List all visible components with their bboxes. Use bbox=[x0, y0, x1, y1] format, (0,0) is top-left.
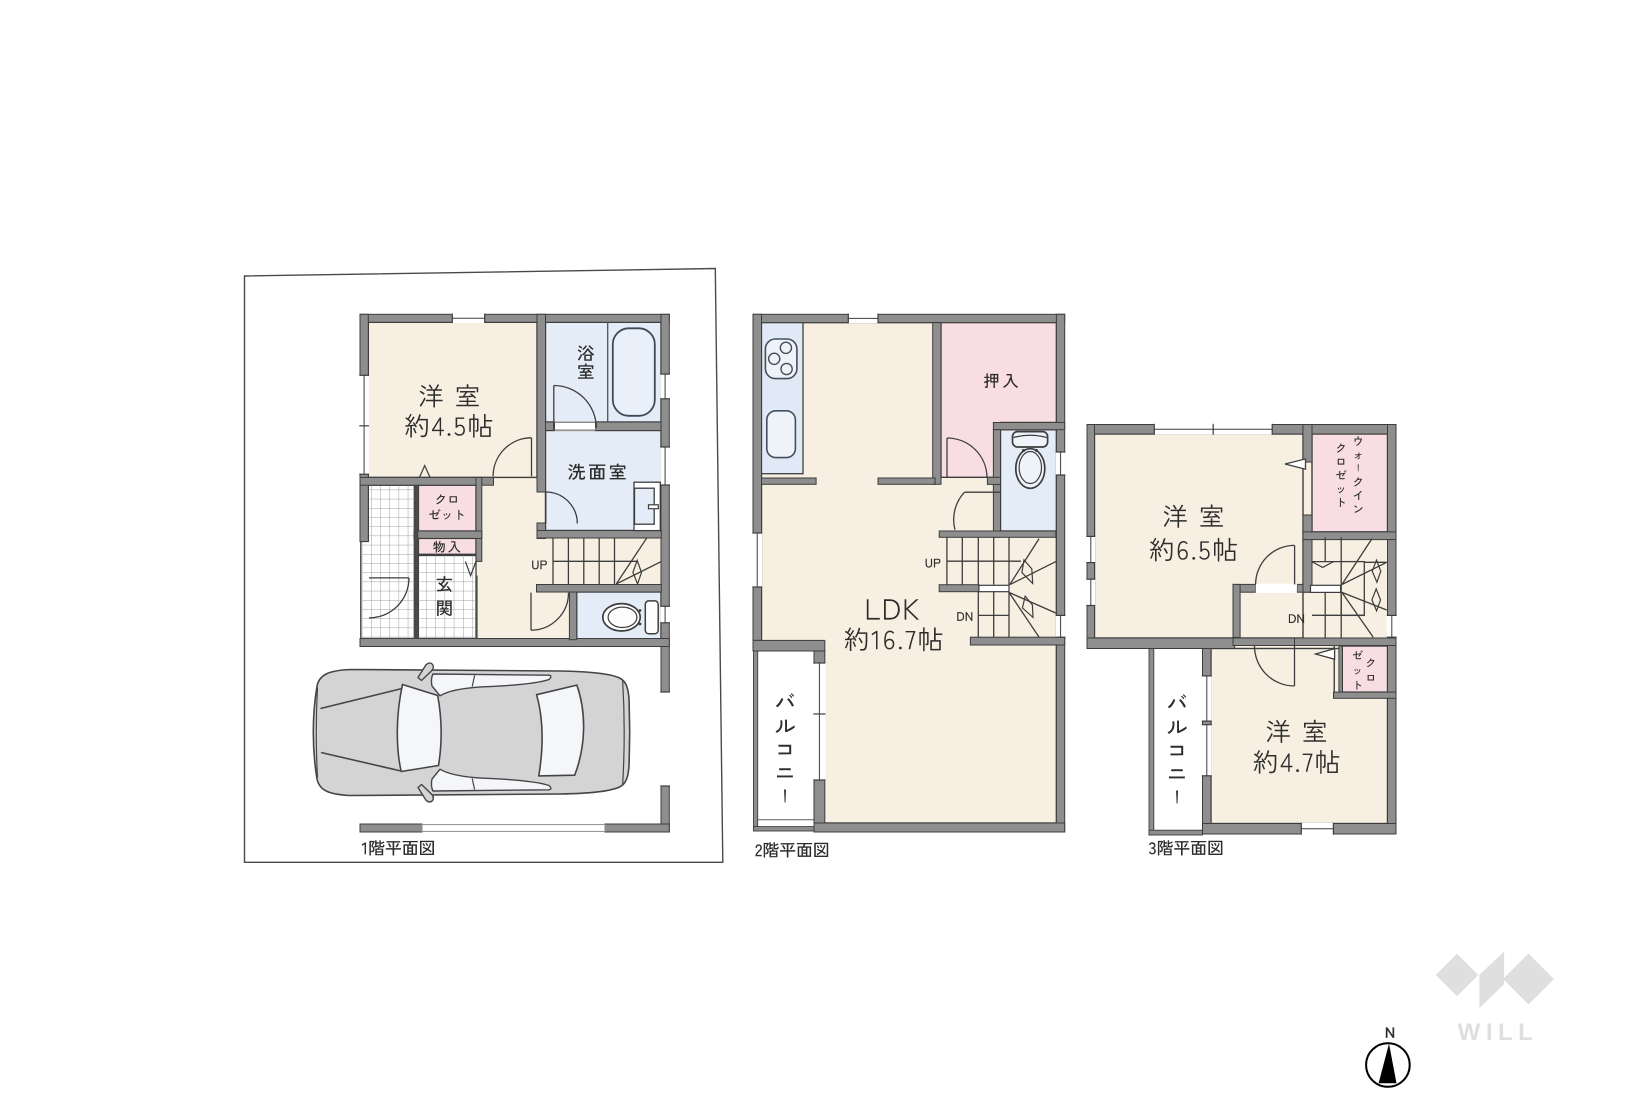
svg-text:WILL: WILL bbox=[1458, 1019, 1539, 1046]
